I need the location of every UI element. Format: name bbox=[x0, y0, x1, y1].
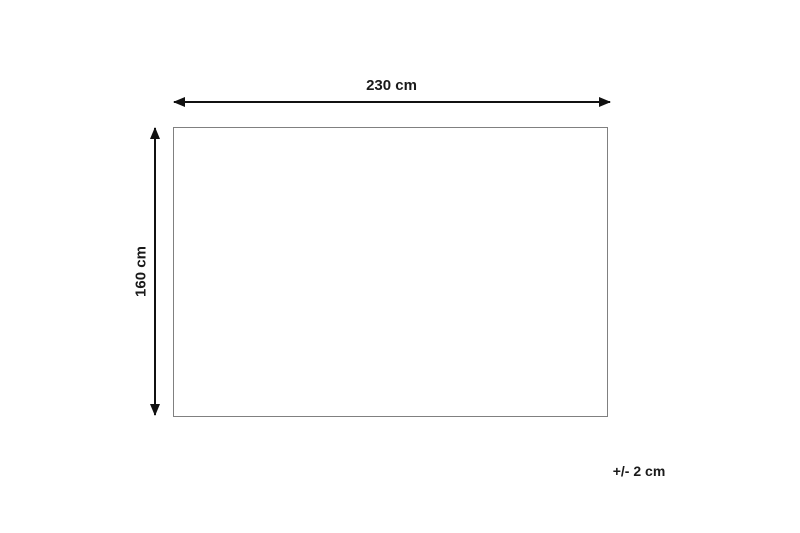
product-outline-rectangle bbox=[173, 127, 608, 417]
height-dimension-label: 160 cm bbox=[133, 222, 150, 322]
dimension-diagram: 230 cm 160 cm +/- 2 cm bbox=[0, 0, 800, 533]
width-dimension-label: 230 cm bbox=[173, 77, 610, 94]
tolerance-label: +/- 2 cm bbox=[589, 463, 689, 479]
horizontal-dimension-arrow-icon bbox=[174, 101, 610, 103]
vertical-dimension-arrow-icon bbox=[154, 128, 156, 415]
